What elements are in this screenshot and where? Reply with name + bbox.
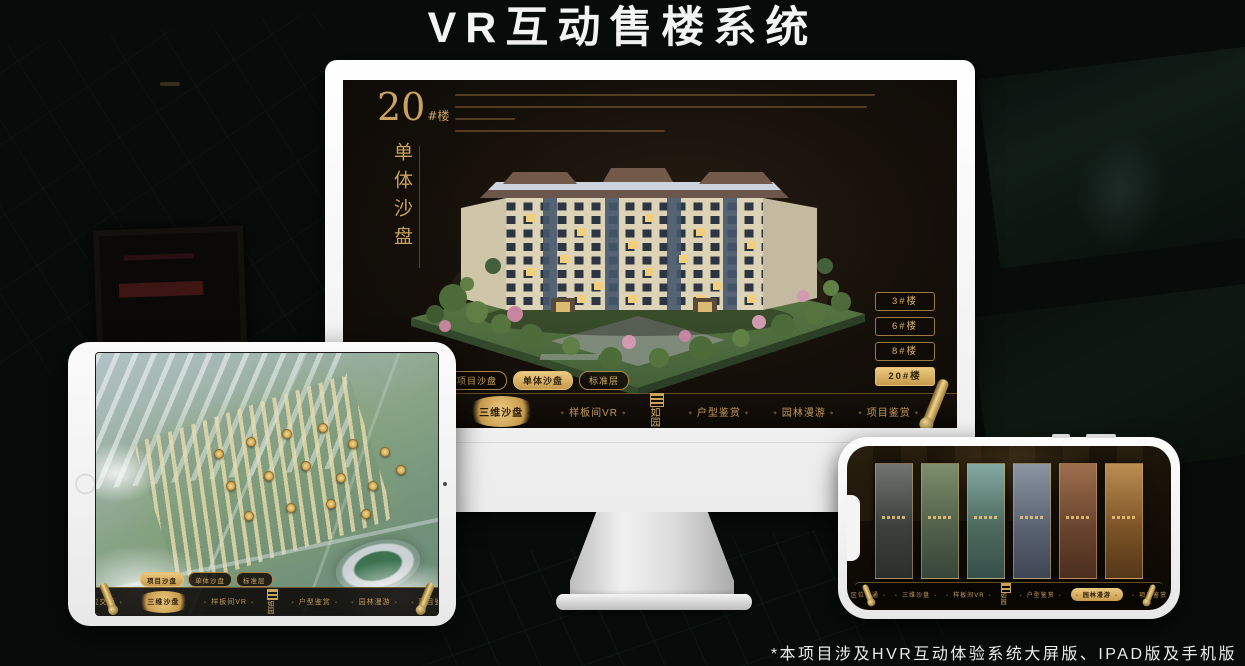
seal-icon: [650, 393, 664, 407]
building-marker[interactable]: [336, 473, 346, 483]
tablet-bottom-bar: 项目沙盘 单体沙盘 标准层 区位交通 三维沙盘 样板间VR 如园 户型鉴赏 园林…: [96, 569, 438, 615]
building-unit-suffix: #楼: [427, 109, 449, 123]
seal-icon: [1001, 583, 1011, 593]
phone-notch: [847, 495, 860, 561]
tablet-home-button: [75, 474, 96, 495]
building-marker[interactable]: [244, 511, 254, 521]
scene-strip-landscape[interactable]: [967, 463, 1005, 579]
building-marker[interactable]: [301, 461, 311, 471]
seal-icon: [267, 589, 278, 600]
building-marker[interactable]: [368, 481, 378, 491]
building-marker[interactable]: [326, 499, 336, 509]
nav-item-unit-plans[interactable]: 户型鉴赏: [1020, 590, 1062, 599]
floor-button-8[interactable]: 8#楼: [875, 342, 935, 361]
building-title: 20#楼: [377, 88, 449, 126]
nav-item-unit-plans[interactable]: 户型鉴赏: [291, 597, 338, 607]
background-aerial-photo-top-right: [977, 46, 1245, 269]
brand-logo-text: 如园: [650, 409, 664, 428]
scene-strip-garden[interactable]: [921, 463, 959, 579]
nav-item-3d-sandtable[interactable]: 三维沙盘: [466, 396, 537, 427]
scene-strip-building[interactable]: [1013, 463, 1051, 579]
nav-item-garden-roam[interactable]: 园林漫游: [1071, 588, 1123, 601]
tab-project-sandtable[interactable]: 项目沙盘: [140, 572, 184, 587]
tablet-screen: 项目沙盘 单体沙盘 标准层 区位交通 三维沙盘 样板间VR 如园 户型鉴赏 园林…: [96, 353, 438, 615]
building-marker[interactable]: [361, 509, 371, 519]
nav-item-unit-plans[interactable]: 户型鉴赏: [688, 404, 749, 419]
view-tab-group: 项目沙盘 单体沙盘 标准层: [447, 371, 629, 390]
nav-item-3d-sandtable[interactable]: 三维沙盘: [136, 591, 191, 613]
main-nav: 区位交通 三维沙盘 样板间VR 如园 户型鉴赏 园林漫游 项目鉴赏: [855, 582, 1163, 605]
building-marker[interactable]: [286, 503, 296, 513]
monitor-stand-neck: [570, 512, 734, 598]
phone-power-button: [1052, 434, 1070, 438]
main-nav: 区位交通 三维沙盘 样板间VR 如园 户型鉴赏 园林漫游 项目鉴赏: [96, 587, 438, 615]
nav-item-project-gallery[interactable]: 项目鉴赏: [858, 404, 919, 419]
scene-strip-autumn[interactable]: [1059, 463, 1097, 579]
background-plaque-photo: [93, 225, 247, 350]
floor-button-6[interactable]: 6#楼: [875, 317, 935, 336]
building-marker[interactable]: [264, 471, 274, 481]
building-marker[interactable]: [226, 481, 236, 491]
tab-standard-floor[interactable]: 标准层: [579, 371, 629, 390]
brand-logo: 如园: [650, 393, 664, 428]
nav-item-showroom-vr[interactable]: 样板间VR: [561, 404, 627, 419]
description-text-blurred: [455, 94, 875, 142]
scene-strip-courtyard[interactable]: [875, 463, 913, 579]
page-title: VR互动售楼系统: [0, 0, 1245, 56]
scene-strip-gallery: [875, 463, 1143, 579]
building-number: 20: [377, 85, 425, 129]
monitor-stand-base: [556, 594, 752, 610]
nav-item-showroom-vr[interactable]: 样板间VR: [204, 597, 255, 607]
tab-standard-floor[interactable]: 标准层: [236, 572, 273, 587]
building-marker[interactable]: [348, 439, 358, 449]
phone-volume-button: [1086, 434, 1116, 438]
footnote: *本项目涉及HVR互动体验系统大屏版、IPAD版及手机版: [771, 640, 1237, 664]
phone-screen: 区位交通 三维沙盘 样板间VR 如园 户型鉴赏 园林漫游 项目鉴赏: [847, 446, 1171, 610]
floor-button-3[interactable]: 3#楼: [875, 292, 935, 311]
brand-logo: 如园: [1001, 583, 1011, 606]
nav-item-showroom-vr[interactable]: 样板间VR: [946, 590, 992, 599]
brand-logo-text: 如园: [267, 601, 278, 615]
nav-item-garden-roam[interactable]: 园林漫游: [773, 404, 834, 419]
tablet-camera: [443, 482, 447, 486]
building-marker[interactable]: [380, 447, 390, 457]
building-marker[interactable]: [282, 429, 292, 439]
brand-logo-text: 如园: [1001, 594, 1011, 606]
view-tab-group: 项目沙盘 单体沙盘 标准层: [140, 572, 273, 587]
nav-item-3d-sandtable[interactable]: 三维沙盘: [895, 590, 937, 599]
building-marker[interactable]: [214, 449, 224, 459]
building-marker[interactable]: [318, 423, 328, 433]
scene-strip-interior[interactable]: [1105, 463, 1143, 579]
tablet-device: 项目沙盘 单体沙盘 标准层 区位交通 三维沙盘 样板间VR 如园 户型鉴赏 园林…: [68, 342, 456, 626]
nav-item-garden-roam[interactable]: 园林漫游: [351, 597, 398, 607]
phone-device: 区位交通 三维沙盘 样板间VR 如园 户型鉴赏 园林漫游 项目鉴赏: [838, 437, 1180, 619]
tab-project-sandtable[interactable]: 项目沙盘: [447, 371, 507, 390]
brand-logo: 如园: [267, 589, 278, 615]
building-marker[interactable]: [396, 465, 406, 475]
tab-single-sandtable[interactable]: 单体沙盘: [188, 572, 232, 587]
background-gold-label: [160, 82, 180, 86]
tab-single-sandtable[interactable]: 单体沙盘: [513, 371, 573, 390]
page: VR互动售楼系统 20#楼 单体沙盘: [0, 0, 1245, 666]
building-3d-render[interactable]: [401, 146, 875, 400]
building-marker[interactable]: [246, 437, 256, 447]
